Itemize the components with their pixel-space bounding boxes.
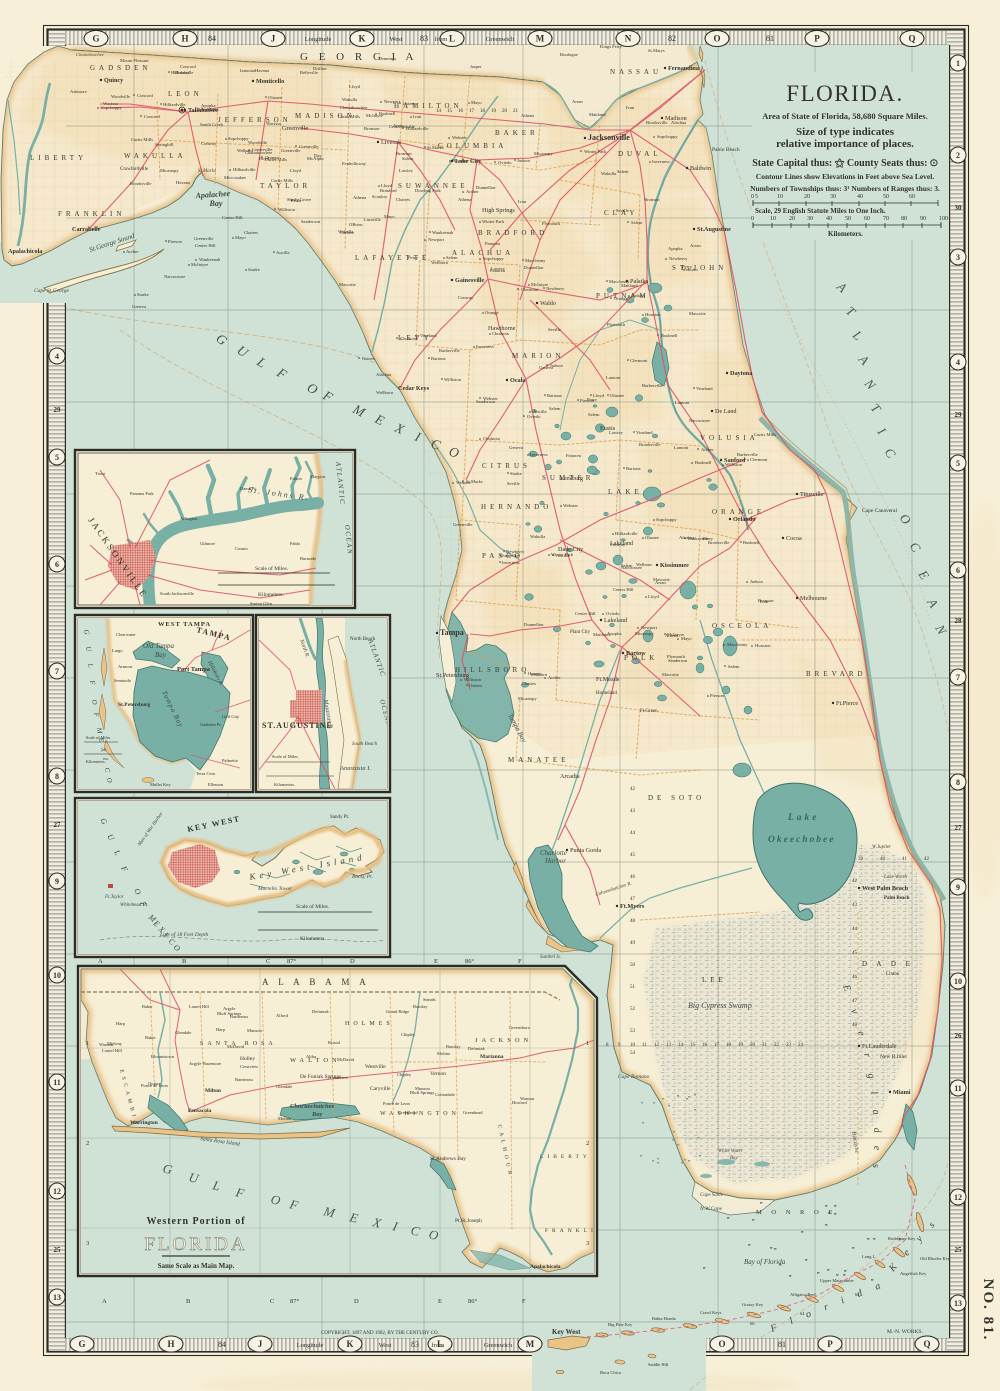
svg-text:Scale of Miles.: Scale of Miles. xyxy=(296,903,330,910)
svg-text:West: West xyxy=(390,36,403,43)
svg-text:Athena: Athena xyxy=(521,113,534,118)
svg-text:Orange: Orange xyxy=(614,296,628,301)
svg-text:43: 43 xyxy=(630,809,636,814)
svg-text:St.Andrews Bay: St.Andrews Bay xyxy=(430,1156,466,1162)
svg-text:Waukeenah: Waukeenah xyxy=(432,230,454,235)
svg-text:Alligator Reef: Alligator Reef xyxy=(790,1292,816,1297)
svg-text:87°: 87° xyxy=(287,958,297,965)
svg-text:Narcoossee: Narcoossee xyxy=(689,418,710,423)
svg-text:Center Hill: Center Hill xyxy=(195,243,216,248)
svg-text:Hilliardville: Hilliardville xyxy=(163,102,185,107)
svg-text:WASHINGTON: WASHINGTON xyxy=(380,1111,460,1117)
svg-text:P: P xyxy=(827,1339,833,1349)
svg-text:Melbourne: Melbourne xyxy=(800,595,827,602)
svg-text:6: 6 xyxy=(55,560,59,569)
svg-text:Webster: Webster xyxy=(483,396,498,401)
svg-text:s: s xyxy=(870,1164,881,1168)
svg-text:McAlpin: McAlpin xyxy=(307,156,324,161)
svg-text:Key West: Key West xyxy=(552,1328,581,1336)
svg-text:51: 51 xyxy=(630,985,636,990)
svg-text:Kilometers.: Kilometers. xyxy=(300,936,326,942)
svg-text:Defuniak: Defuniak xyxy=(312,1009,329,1014)
svg-text:Newport: Newport xyxy=(384,99,401,104)
svg-text:FLORIDA: FLORIDA xyxy=(144,1234,247,1255)
svg-text:47: 47 xyxy=(852,999,858,1004)
svg-text:Osteen: Osteen xyxy=(362,356,375,361)
svg-text:LIBERTY: LIBERTY xyxy=(30,154,87,162)
svg-text:Pierson: Pierson xyxy=(168,239,182,244)
svg-text:Starke: Starke xyxy=(137,292,149,297)
svg-text:Bronson: Bronson xyxy=(644,197,660,202)
svg-text:Longitude: Longitude xyxy=(305,36,332,43)
svg-text:Kilometers.: Kilometers. xyxy=(274,782,295,787)
svg-text:Bushnell: Bushnell xyxy=(661,333,678,338)
svg-text:Dunnellon: Dunnellon xyxy=(476,185,496,190)
svg-text:MARION: MARION xyxy=(512,352,564,360)
svg-text:Cedar Keys: Cedar Keys xyxy=(398,385,430,392)
svg-text:Mayport: Mayport xyxy=(310,474,326,479)
svg-text:Dame Pt: Dame Pt xyxy=(240,486,256,491)
svg-text:Perry: Perry xyxy=(408,255,419,260)
svg-text:Arran: Arran xyxy=(690,243,701,248)
svg-text:Oviedo: Oviedo xyxy=(527,414,541,419)
svg-text:Athena: Athena xyxy=(353,195,366,200)
svg-text:4: 4 xyxy=(956,358,960,367)
svg-text:Winter Park: Winter Park xyxy=(482,219,505,224)
svg-text:Scanlon: Scanlon xyxy=(372,194,388,199)
svg-text:Area of State of Florida, 58,6: Area of State of Florida, 58,680 Square … xyxy=(762,111,927,121)
svg-text:22: 22 xyxy=(774,1043,780,1048)
svg-text:Laurel Hill: Laurel Hill xyxy=(102,1048,123,1053)
svg-text:Dowling Park: Dowling Park xyxy=(415,188,441,193)
svg-text:Webster: Webster xyxy=(452,135,467,140)
svg-text:Aucilla: Aucilla xyxy=(533,409,547,414)
svg-text:Scale of Miles.: Scale of Miles. xyxy=(86,735,111,740)
svg-text:N: N xyxy=(625,34,632,44)
svg-text:Wellborn: Wellborn xyxy=(431,260,449,265)
svg-text:Hilliardville: Hilliardville xyxy=(615,531,637,536)
svg-text:Bartona: Bartona xyxy=(547,393,562,398)
svg-text:W.Jupiter: W.Jupiter xyxy=(872,845,891,850)
svg-text:42: 42 xyxy=(630,787,636,792)
svg-text:L: L xyxy=(449,34,455,44)
svg-text:relative importance of places.: relative importance of places. xyxy=(776,138,914,150)
svg-text:Chattahoochee: Chattahoochee xyxy=(340,105,367,110)
svg-text:Inverness: Inverness xyxy=(652,159,670,164)
svg-text:Cape Canaveral: Cape Canaveral xyxy=(862,508,897,514)
svg-text:42: 42 xyxy=(924,857,930,862)
svg-text:Midway: Midway xyxy=(174,70,190,75)
svg-text:Saddle Hill: Saddle Hill xyxy=(648,1362,669,1367)
svg-text:ST.JOHN: ST.JOHN xyxy=(672,264,727,272)
svg-text:Panacea: Panacea xyxy=(566,453,581,458)
svg-text:23: 23 xyxy=(786,1043,792,1048)
svg-text:39: 39 xyxy=(858,857,864,862)
svg-text:Glendale: Glendale xyxy=(276,1084,292,1089)
svg-text:Kilometers.: Kilometers. xyxy=(828,230,863,238)
svg-text:Olustee: Olustee xyxy=(610,393,624,398)
svg-text:Curtis Mills: Curtis Mills xyxy=(754,432,776,437)
svg-text:Charlotte: Charlotte xyxy=(540,849,567,857)
svg-text:Vernon: Vernon xyxy=(430,1071,446,1077)
svg-text:West Palm Beach: West Palm Beach xyxy=(862,885,909,892)
svg-text:Upper Matacumbe: Upper Matacumbe xyxy=(820,1278,854,1283)
svg-text:Ft.Taylor: Ft.Taylor xyxy=(104,895,124,900)
svg-text:16: 16 xyxy=(458,109,464,114)
svg-text:41: 41 xyxy=(902,857,908,862)
svg-text:Archer: Archer xyxy=(548,675,561,680)
svg-text:2: 2 xyxy=(956,151,960,160)
svg-text:Starke: Starke xyxy=(510,471,522,476)
svg-text:Lawtey: Lawtey xyxy=(609,430,623,435)
svg-text:De Land: De Land xyxy=(715,408,737,415)
svg-text:Barberville: Barberville xyxy=(737,452,758,457)
svg-text:Judson: Judson xyxy=(750,579,763,584)
svg-text:Macclenny: Macclenny xyxy=(609,279,630,284)
svg-text:LIBERTY: LIBERTY xyxy=(540,1154,591,1160)
svg-text:Tampa: Tampa xyxy=(440,628,464,637)
svg-text:Houston: Houston xyxy=(452,158,468,163)
svg-text:State Capital thus: ⚝ County S: State Capital thus: ⚝ County Seats thus:… xyxy=(752,157,938,169)
svg-text:Mount Pleasant: Mount Pleasant xyxy=(120,58,149,63)
svg-text:ORANGE: ORANGE xyxy=(712,508,765,516)
svg-text:O: O xyxy=(713,34,720,44)
svg-text:Lawtey: Lawtey xyxy=(399,168,413,173)
svg-text:Wellborn: Wellborn xyxy=(376,390,394,395)
svg-text:Starke: Starke xyxy=(248,267,260,272)
svg-text:New R.Inlet: New R.Inlet xyxy=(880,1054,907,1060)
svg-text:Hosford: Hosford xyxy=(512,1100,527,1105)
svg-text:0: 0 xyxy=(751,216,754,222)
svg-text:Crawfordville: Crawfordville xyxy=(120,167,149,172)
svg-text:Clermont: Clermont xyxy=(521,287,539,292)
svg-text:Quincy: Quincy xyxy=(104,77,124,84)
svg-text:Eridu: Eridu xyxy=(291,198,302,203)
svg-text:Rocky Pt.: Rocky Pt. xyxy=(351,874,373,880)
svg-text:Largo: Largo xyxy=(112,648,123,653)
svg-text:H: H xyxy=(167,1339,174,1349)
svg-text:8: 8 xyxy=(956,778,960,787)
svg-text:Cosmo: Cosmo xyxy=(235,546,249,551)
svg-text:11: 11 xyxy=(642,1043,647,1048)
svg-text:Curtis Mills: Curtis Mills xyxy=(131,137,153,142)
svg-text:Salem: Salem xyxy=(588,412,600,417)
svg-text:Seminole: Seminole xyxy=(114,678,131,683)
svg-text:Sopchoppy: Sopchoppy xyxy=(657,134,678,139)
svg-text:90: 90 xyxy=(920,216,926,222)
svg-text:Center Hill: Center Hill xyxy=(222,215,243,220)
svg-text:Greenville: Greenville xyxy=(282,125,308,132)
svg-text:McDavid: McDavid xyxy=(337,1057,355,1062)
svg-text:ST.AUGUSTINE: ST.AUGUSTINE xyxy=(262,721,333,730)
svg-text:Gainesville: Gainesville xyxy=(455,277,484,284)
svg-text:N.W.Cape: N.W.Cape xyxy=(699,1206,723,1212)
svg-text:Liveoak: Liveoak xyxy=(381,139,402,146)
svg-text:Line of 18 Feet Depth: Line of 18 Feet Depth xyxy=(159,931,209,938)
svg-text:Center Hill: Center Hill xyxy=(575,611,596,616)
svg-text:11: 11 xyxy=(954,1084,962,1093)
svg-text:17: 17 xyxy=(714,1043,720,1048)
svg-text:Hilliardville: Hilliardville xyxy=(233,167,255,172)
svg-text:LEE: LEE xyxy=(702,976,727,984)
svg-text:Vineland: Vineland xyxy=(420,333,437,338)
svg-text:Micanopy: Micanopy xyxy=(534,151,553,156)
svg-text:Apalachicola: Apalachicola xyxy=(530,1264,561,1270)
svg-text:Scale, 29 English Statute Mile: Scale, 29 English Statute Miles to One I… xyxy=(755,207,886,215)
svg-text:Houston: Houston xyxy=(755,643,771,648)
svg-text:Trout: Trout xyxy=(95,471,106,476)
svg-text:Baker: Baker xyxy=(145,1035,156,1040)
svg-text:Ft.Myers: Ft.Myers xyxy=(620,903,645,910)
svg-text:3: 3 xyxy=(586,1240,589,1247)
svg-text:Ft.Meade: Ft.Meade xyxy=(596,676,620,683)
svg-text:45: 45 xyxy=(852,951,858,956)
svg-text:Bay: Bay xyxy=(311,1111,323,1118)
svg-text:Leesburg: Leesburg xyxy=(560,475,583,482)
svg-text:Archer: Archer xyxy=(701,447,714,452)
svg-text:1: 1 xyxy=(956,59,960,68)
svg-text:Miami: Miami xyxy=(893,1089,911,1096)
svg-text:A: A xyxy=(102,1298,107,1305)
svg-text:Big Cypress Swamp: Big Cypress Swamp xyxy=(688,1001,752,1010)
svg-text:Iamonia: Iamonia xyxy=(240,68,255,73)
svg-text:Bonifay: Bonifay xyxy=(413,1004,428,1009)
svg-text:30: 30 xyxy=(955,204,963,212)
svg-text:Greenhead: Greenhead xyxy=(398,1110,418,1115)
svg-text:10: 10 xyxy=(630,1043,636,1048)
svg-text:Sanderson: Sanderson xyxy=(301,219,321,224)
svg-text:WAKULLA: WAKULLA xyxy=(124,152,187,160)
svg-text:Dunnellon: Dunnellon xyxy=(524,265,544,270)
svg-text:K: K xyxy=(358,34,365,44)
svg-text:E: E xyxy=(434,958,438,965)
svg-text:BREVARD: BREVARD xyxy=(806,670,867,678)
svg-text:19: 19 xyxy=(491,109,497,114)
svg-text:42: 42 xyxy=(852,879,858,884)
svg-text:Gilmore: Gilmore xyxy=(200,541,215,546)
svg-text:Jennings: Jennings xyxy=(380,56,396,61)
svg-text:Oviedo: Oviedo xyxy=(498,160,512,165)
svg-text:FRANKLIN: FRANKLIN xyxy=(58,210,125,218)
svg-text:Greenville: Greenville xyxy=(281,148,300,153)
svg-text:from: from xyxy=(435,36,448,43)
svg-text:Center Hill: Center Hill xyxy=(613,587,634,592)
svg-text:VOLUSIA: VOLUSIA xyxy=(700,434,759,442)
svg-text:LAKE: LAKE xyxy=(608,488,643,496)
svg-text:Greenwich: Greenwich xyxy=(486,36,515,43)
svg-text:Crestview: Crestview xyxy=(330,1075,349,1080)
svg-text:McIntyre: McIntyre xyxy=(531,282,548,287)
svg-text:Ashmore: Ashmore xyxy=(70,89,87,94)
svg-text:DUVAL: DUVAL xyxy=(618,150,662,158)
svg-text:F: F xyxy=(518,958,522,965)
svg-text:8: 8 xyxy=(55,772,59,781)
svg-text:Pablo Beach: Pablo Beach xyxy=(712,147,740,153)
svg-text:Geneva: Geneva xyxy=(509,445,523,450)
svg-text:Western Portion of: Western Portion of xyxy=(146,1216,245,1227)
svg-text:53: 53 xyxy=(630,1029,636,1034)
svg-text:Smith Creek: Smith Creek xyxy=(200,122,224,127)
svg-text:54: 54 xyxy=(630,1051,636,1056)
svg-text:Conway: Conway xyxy=(458,295,474,300)
svg-text:44: 44 xyxy=(630,831,636,836)
svg-text:Geneva: Geneva xyxy=(132,304,146,309)
svg-text:from: from xyxy=(432,1342,445,1349)
svg-text:Ivan: Ivan xyxy=(413,114,422,119)
svg-text:19: 19 xyxy=(738,1043,744,1048)
svg-text:Ft.Green: Ft.Green xyxy=(640,709,658,714)
svg-text:Greenwich: Greenwich xyxy=(484,1342,513,1349)
svg-text:Bluff Springs: Bluff Springs xyxy=(217,1011,242,1016)
svg-text:Salem: Salem xyxy=(631,220,643,225)
svg-text:Chaires: Chaires xyxy=(522,681,536,686)
svg-text:Chipley: Chipley xyxy=(401,1032,416,1037)
svg-text:Sopchoppy: Sopchoppy xyxy=(101,105,122,110)
svg-text:E: E xyxy=(438,1298,442,1305)
svg-text:Barrineau: Barrineau xyxy=(235,1077,253,1082)
svg-text:Choctawhatchee: Choctawhatchee xyxy=(290,1103,335,1110)
svg-text:Bahia Honda: Bahia Honda xyxy=(652,1316,676,1321)
svg-text:Jacksonville: Jacksonville xyxy=(588,133,630,142)
svg-text:GADSDEN: GADSDEN xyxy=(90,64,151,72)
svg-text:60: 60 xyxy=(864,216,870,222)
svg-text:Kissimmee: Kissimmee xyxy=(660,562,689,569)
svg-text:LEON: LEON xyxy=(168,90,203,98)
svg-text:Arlington: Arlington xyxy=(180,516,198,521)
svg-text:Luraville: Luraville xyxy=(364,217,381,222)
svg-text:Carlton: Carlton xyxy=(340,230,354,235)
svg-text:Lamont: Lamont xyxy=(674,445,689,450)
svg-text:Archer: Archer xyxy=(126,249,139,254)
svg-text:Argyle: Argyle xyxy=(189,1061,201,1066)
svg-text:St.Petersburg: St.Petersburg xyxy=(118,702,150,708)
svg-text:46: 46 xyxy=(852,975,858,980)
svg-text:Micanopy: Micanopy xyxy=(635,631,654,636)
svg-text:27: 27 xyxy=(54,821,62,829)
svg-text:Bartow: Bartow xyxy=(626,650,646,657)
svg-text:Blountstown: Blountstown xyxy=(151,1054,175,1059)
svg-text:Athena: Athena xyxy=(458,197,471,202)
svg-text:M O N R O E: M O N R O E xyxy=(756,1209,836,1216)
svg-text:Maitland: Maitland xyxy=(589,112,606,117)
svg-text:Bay of Florida: Bay of Florida xyxy=(744,1258,786,1266)
svg-text:Harp: Harp xyxy=(216,1027,226,1032)
svg-text:Munson: Munson xyxy=(247,1028,263,1033)
svg-text:Brooksville: Brooksville xyxy=(646,120,667,125)
svg-text:Titusville: Titusville xyxy=(800,491,824,498)
svg-text:Clermont: Clermont xyxy=(750,457,768,462)
svg-text:McDavid: McDavid xyxy=(227,1044,245,1049)
svg-text:Mascotte: Mascotte xyxy=(339,282,356,287)
svg-text:Judson: Judson xyxy=(517,158,530,163)
svg-text:1: 1 xyxy=(586,1040,589,1047)
svg-text:P: P xyxy=(814,34,820,44)
svg-text:83: 83 xyxy=(420,34,428,43)
svg-text:Boulogne: Boulogne xyxy=(560,52,578,57)
svg-text:Wakulla: Wakulla xyxy=(342,97,357,102)
svg-text:Jasper: Jasper xyxy=(470,64,482,69)
svg-text:Seville: Seville xyxy=(507,481,520,486)
svg-text:Longitude: Longitude xyxy=(297,1342,324,1349)
svg-text:Salem: Salem xyxy=(549,406,561,411)
svg-text:80: 80 xyxy=(901,216,907,222)
svg-text:Concord: Concord xyxy=(137,93,154,98)
svg-text:Bartona: Bartona xyxy=(431,356,446,361)
svg-text:Oviedo: Oviedo xyxy=(606,611,620,616)
svg-text:Conway: Conway xyxy=(201,141,217,146)
svg-text:Concord: Concord xyxy=(180,64,197,69)
svg-text:D: D xyxy=(354,1298,359,1305)
svg-text:Baldwin: Baldwin xyxy=(690,165,711,172)
svg-text:70: 70 xyxy=(883,216,889,222)
svg-text:Kilometers.: Kilometers. xyxy=(258,592,284,598)
svg-text:12: 12 xyxy=(53,1187,61,1196)
svg-text:Barberville: Barberville xyxy=(642,383,663,388)
svg-text:2: 2 xyxy=(86,1140,89,1147)
svg-text:C: C xyxy=(270,1298,274,1305)
svg-text:Salem: Salem xyxy=(402,156,414,161)
svg-text:Numbers of Townships thus: 3¹: Numbers of Townships thus: 3¹ Numbers of… xyxy=(750,184,940,193)
svg-text:Argyle: Argyle xyxy=(223,1006,235,1011)
svg-text:Panama Park: Panama Park xyxy=(130,491,154,496)
svg-text:Linton: Linton xyxy=(886,972,900,977)
svg-text:Lloyd: Lloyd xyxy=(290,168,302,173)
svg-text:40: 40 xyxy=(826,216,832,222)
svg-text:48: 48 xyxy=(630,919,636,924)
svg-text:28: 28 xyxy=(955,617,963,625)
svg-text:Branford: Branford xyxy=(380,188,397,193)
svg-text:Mascotte: Mascotte xyxy=(689,311,706,316)
svg-text:Chuluota: Chuluota xyxy=(400,336,417,341)
svg-text:83: 83 xyxy=(411,1340,419,1349)
svg-text:Contour Lines show Elevations: Contour Lines show Elevations in Feet ab… xyxy=(756,172,935,181)
svg-text:Holley: Holley xyxy=(240,1056,255,1062)
svg-text:66: 66 xyxy=(750,1321,755,1326)
svg-text:52: 52 xyxy=(630,1007,636,1012)
svg-text:Ponce de Leon: Ponce de Leon xyxy=(383,1101,410,1106)
svg-text:South Beach: South Beach xyxy=(352,742,378,747)
svg-text:Baker: Baker xyxy=(142,1004,153,1009)
svg-text:Same Scale as Main Map.: Same Scale as Main Map. xyxy=(158,1262,235,1270)
svg-text:Grand Ridge: Grand Ridge xyxy=(386,1009,409,1014)
svg-text:St.Augustine: St.Augustine xyxy=(697,226,731,233)
svg-text:Pablo: Pablo xyxy=(290,541,301,546)
svg-text:Apopka: Apopka xyxy=(668,246,683,251)
svg-text:Lloyd: Lloyd xyxy=(648,594,660,599)
svg-text:Orange: Orange xyxy=(485,310,499,315)
svg-text:Houston: Houston xyxy=(645,312,661,317)
svg-text:Scale of Miles: Scale of Miles xyxy=(272,754,298,759)
svg-text:Alachua: Alachua xyxy=(376,372,391,377)
svg-text:B: B xyxy=(182,958,187,965)
svg-text:Grassy Key: Grassy Key xyxy=(742,1302,764,1307)
svg-text:Munson: Munson xyxy=(415,1086,431,1091)
svg-text:44: 44 xyxy=(852,927,858,932)
svg-text:Williston: Williston xyxy=(725,462,743,467)
svg-text:White Water: White Water xyxy=(718,1149,743,1154)
svg-text:Daytona: Daytona xyxy=(730,370,752,377)
svg-text:Defuniak: Defuniak xyxy=(468,1046,485,1051)
svg-text:Mascotte: Mascotte xyxy=(653,577,670,582)
svg-text:26: 26 xyxy=(955,1032,963,1040)
svg-text:29: 29 xyxy=(54,406,62,414)
svg-text:49: 49 xyxy=(630,941,636,946)
svg-text:Okeechobee: Okeechobee xyxy=(768,835,835,845)
svg-text:Curtis Mills: Curtis Mills xyxy=(271,178,293,183)
svg-text:Olustee: Olustee xyxy=(645,535,659,540)
svg-text:13: 13 xyxy=(53,1293,61,1302)
svg-text:O: O xyxy=(718,1339,725,1349)
